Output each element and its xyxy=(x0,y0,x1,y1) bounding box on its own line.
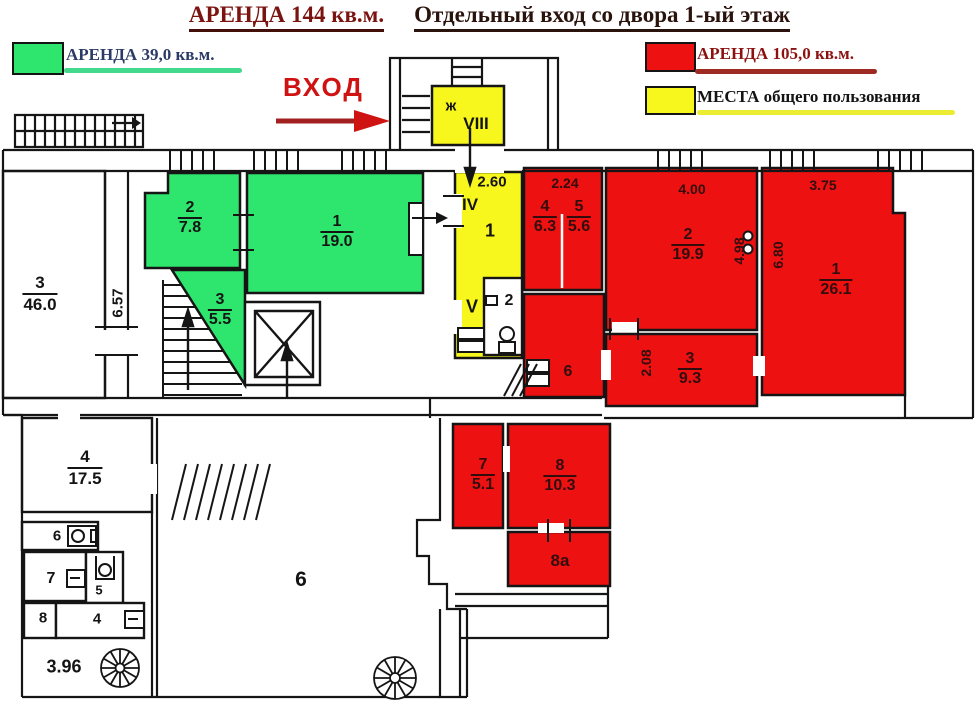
room-label-red-4: 46.3 xyxy=(533,198,557,236)
dim-left-wall: 6.57 xyxy=(110,288,127,317)
legend-green-label: АРЕНДА 39,0 кв.м. xyxy=(66,45,215,65)
title-area: АРЕНДА 144 кв.м. xyxy=(189,2,384,32)
dim-rooms45-width: 2.24 xyxy=(551,175,578,191)
label-v: V xyxy=(466,297,478,318)
floor-plan-page: АРЕНДА 144 кв.м. Отдельный вход со двора… xyxy=(0,0,979,704)
elevator-icon xyxy=(245,302,320,385)
room-label-white-4: 417.5 xyxy=(67,447,102,489)
spiral-stair-icon-left xyxy=(101,649,139,687)
label-corridor-1: 1 xyxy=(485,221,495,242)
room-label-red-2: 219.9 xyxy=(671,226,704,264)
fixture-icon-room7 xyxy=(67,570,85,587)
legend-yellow-label: МЕСТА общего пользования xyxy=(697,87,921,107)
page-title: АРЕНДА 144 кв.м. Отдельный вход со двора… xyxy=(0,2,979,32)
room-label-green-1: 119.0 xyxy=(320,213,353,251)
entrance-arrow-icon xyxy=(276,110,390,132)
dim-room1-width: 3.75 xyxy=(809,177,836,193)
room-label-small-6: 6 xyxy=(53,528,61,545)
room-label-small-4: 4 xyxy=(93,611,101,628)
spiral-stair-icon-center xyxy=(374,657,416,699)
entrance-label: ВХОД xyxy=(283,72,364,103)
room-label-red-3: 39.3 xyxy=(678,350,702,388)
legend-red-swatch xyxy=(645,42,696,72)
legend-yellow-swatch xyxy=(645,86,696,115)
room-label-red-6: 6 xyxy=(564,363,573,381)
room-label-small-7: 7 xyxy=(47,570,56,588)
legend-red-underline xyxy=(695,69,877,74)
legend-red-label: АРЕНДА 105,0 кв.м. xyxy=(697,44,854,64)
legend-green-underline xyxy=(64,68,242,73)
door-arrow-icon xyxy=(436,212,448,224)
title-entrance: Отдельный вход со двора 1-ый этаж xyxy=(414,2,790,32)
dim-room1-height: 6.80 xyxy=(770,241,786,268)
room-label-red-1: 126.1 xyxy=(819,261,852,299)
dim-room2-height: 4.98 xyxy=(731,237,747,264)
toilet-icon-room5 xyxy=(96,556,114,579)
dim-bottom-left: 3.96 xyxy=(46,657,81,678)
room-label-green-3: 35.5 xyxy=(208,291,232,329)
room-label-red-7: 75.1 xyxy=(471,456,495,494)
dim-corridor-width: 2.60 xyxy=(477,174,506,191)
legend-green-swatch xyxy=(12,42,64,75)
dim-room2-width: 4.00 xyxy=(678,181,705,197)
dim-room3-height: 2.08 xyxy=(638,349,654,376)
label-iv: IV xyxy=(462,195,478,215)
fixture-icon-room4 xyxy=(125,611,144,628)
room-label-red-5: 55.6 xyxy=(567,198,591,236)
label-viii: VIII xyxy=(463,114,489,134)
room-label-red-8a: 8а xyxy=(551,551,570,571)
legend-yellow-underline xyxy=(697,110,955,115)
room-label-white-3: 346.0 xyxy=(22,273,57,315)
room-label-small-8: 8 xyxy=(39,610,47,627)
comb-arrow-icon xyxy=(132,117,141,129)
room-label-small-5: 5 xyxy=(95,583,102,598)
label-zh: ж xyxy=(446,98,457,115)
room-label-green-2: 27.8 xyxy=(178,199,202,237)
room-label-big-6: 6 xyxy=(295,568,307,592)
room-label-red-8: 810.3 xyxy=(543,457,576,495)
sink-icon-room6 xyxy=(68,526,96,546)
label-wc-2: 2 xyxy=(505,292,514,310)
